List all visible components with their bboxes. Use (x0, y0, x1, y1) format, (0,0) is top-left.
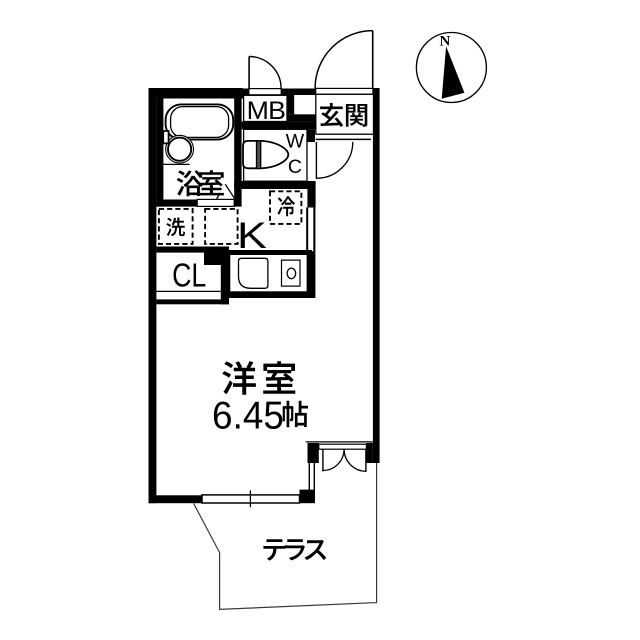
svg-text:W: W (286, 130, 305, 152)
svg-text:N: N (439, 33, 450, 49)
svg-text:K: K (237, 214, 267, 256)
svg-text:C: C (288, 156, 302, 178)
svg-text:CL: CL (172, 258, 206, 294)
svg-text:MB: MB (247, 96, 286, 125)
svg-text:6.45: 6.45 (212, 394, 284, 437)
